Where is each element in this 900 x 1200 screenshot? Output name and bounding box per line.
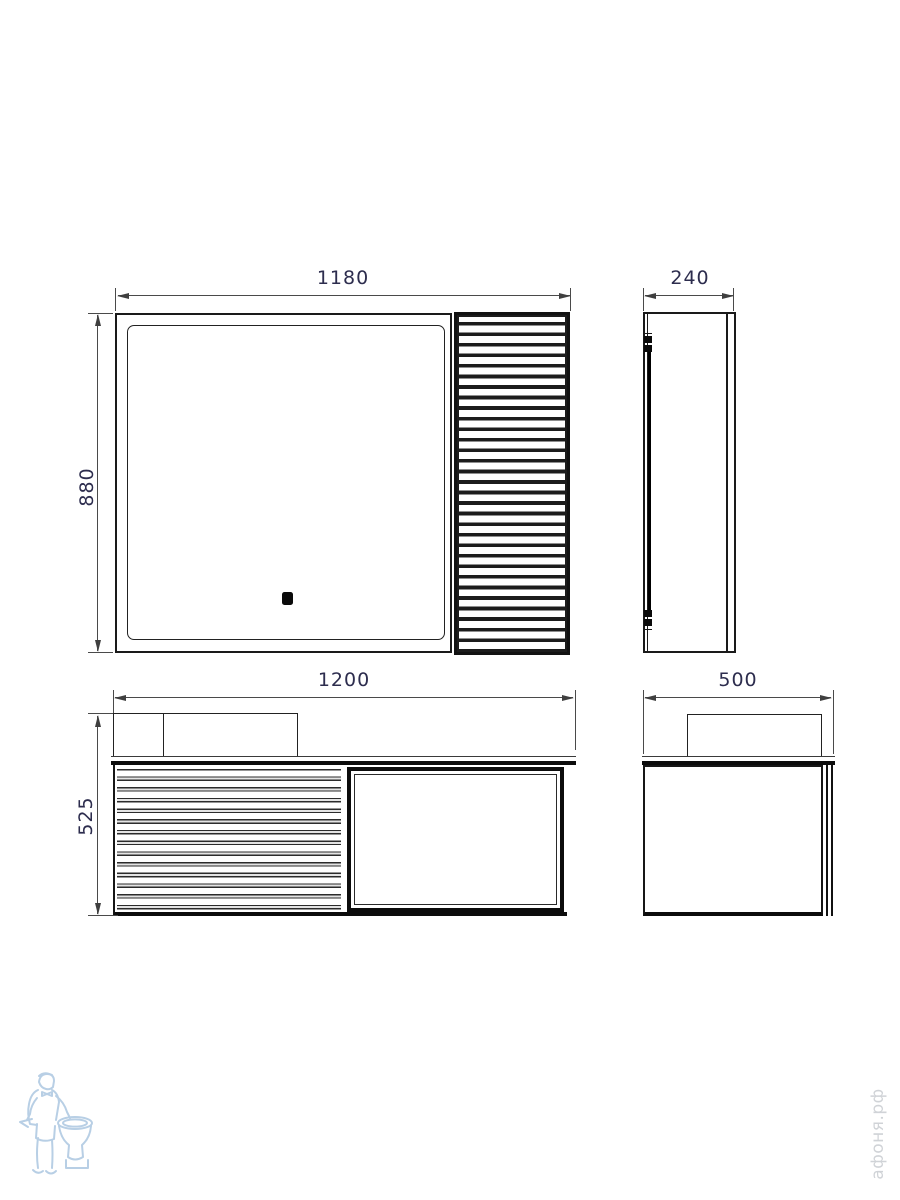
- extension-line: [833, 690, 834, 754]
- arrowhead-icon: [95, 903, 101, 915]
- countertop: [111, 756, 576, 765]
- extension-line: [88, 652, 113, 653]
- hinge-tick-line: [644, 333, 652, 334]
- washbasin-side-outline: [687, 714, 822, 757]
- touch-sensor-icon: [282, 592, 293, 605]
- arrowhead-icon: [114, 695, 126, 701]
- hinge-block: [644, 345, 652, 352]
- hinge-tick-line: [644, 629, 652, 630]
- arrowhead-icon: [95, 715, 101, 727]
- cabinet-door-inner-line: [354, 774, 557, 905]
- washbasin-outline: [113, 713, 298, 757]
- vanity-depth-dimension-line: [645, 697, 831, 698]
- vanity-cabinet-side-outline: [643, 765, 823, 916]
- hinge-block: [644, 610, 652, 617]
- arrowhead-icon: [117, 293, 129, 299]
- extension-line: [570, 288, 571, 311]
- arrowhead-icon: [644, 695, 656, 701]
- extension-line: [88, 915, 118, 916]
- arrowhead-icon: [820, 695, 832, 701]
- ribbed-panel: [454, 312, 570, 655]
- extension-line: [575, 690, 576, 750]
- vanity-height-dimension-line: [97, 716, 98, 914]
- arrowhead-icon: [562, 695, 574, 701]
- arrowhead-icon: [95, 314, 101, 326]
- countertop-side: [642, 756, 835, 765]
- washbasin-divider-line: [163, 713, 164, 757]
- vanity-width-dimension-line: [115, 697, 573, 698]
- vanity-height-dimension-label: 525: [75, 792, 95, 840]
- site-watermark-text: афоня.рф: [868, 1078, 888, 1190]
- extension-line: [115, 288, 116, 311]
- technical-drawing-page: 1180 880 240: [0, 0, 900, 1200]
- arrowhead-icon: [644, 293, 656, 299]
- extension-line: [643, 690, 644, 754]
- mirror-glass-edge: [648, 352, 651, 612]
- mirror-cabinet-side-outline: [643, 312, 736, 653]
- cabinet-door: [347, 767, 564, 912]
- extension-line: [88, 713, 113, 714]
- extension-line: [643, 288, 644, 311]
- mirror-height-dimension-label: 880: [76, 463, 96, 511]
- plumber-mascot-logo-icon: [6, 1068, 106, 1190]
- cabinet-back-panel-line: [726, 314, 728, 651]
- mirror-width-dimension-line: [118, 295, 570, 296]
- cabinet-door-side-edge: [826, 765, 833, 916]
- arrowhead-icon: [95, 640, 101, 652]
- extension-line: [733, 288, 734, 311]
- hinge-block: [644, 619, 652, 626]
- mirror-width-dimension-label: 1180: [298, 267, 388, 289]
- mirror-depth-dimension-line: [645, 295, 733, 296]
- hinge-block: [644, 336, 652, 343]
- extension-line: [88, 313, 113, 314]
- mirror-height-dimension-line: [97, 315, 98, 651]
- vanity-width-dimension-label: 1200: [299, 669, 389, 691]
- mirror-depth-dimension-label: 240: [664, 267, 716, 289]
- ribbed-drawer-front: [117, 769, 341, 912]
- vanity-depth-dimension-label: 500: [712, 669, 764, 691]
